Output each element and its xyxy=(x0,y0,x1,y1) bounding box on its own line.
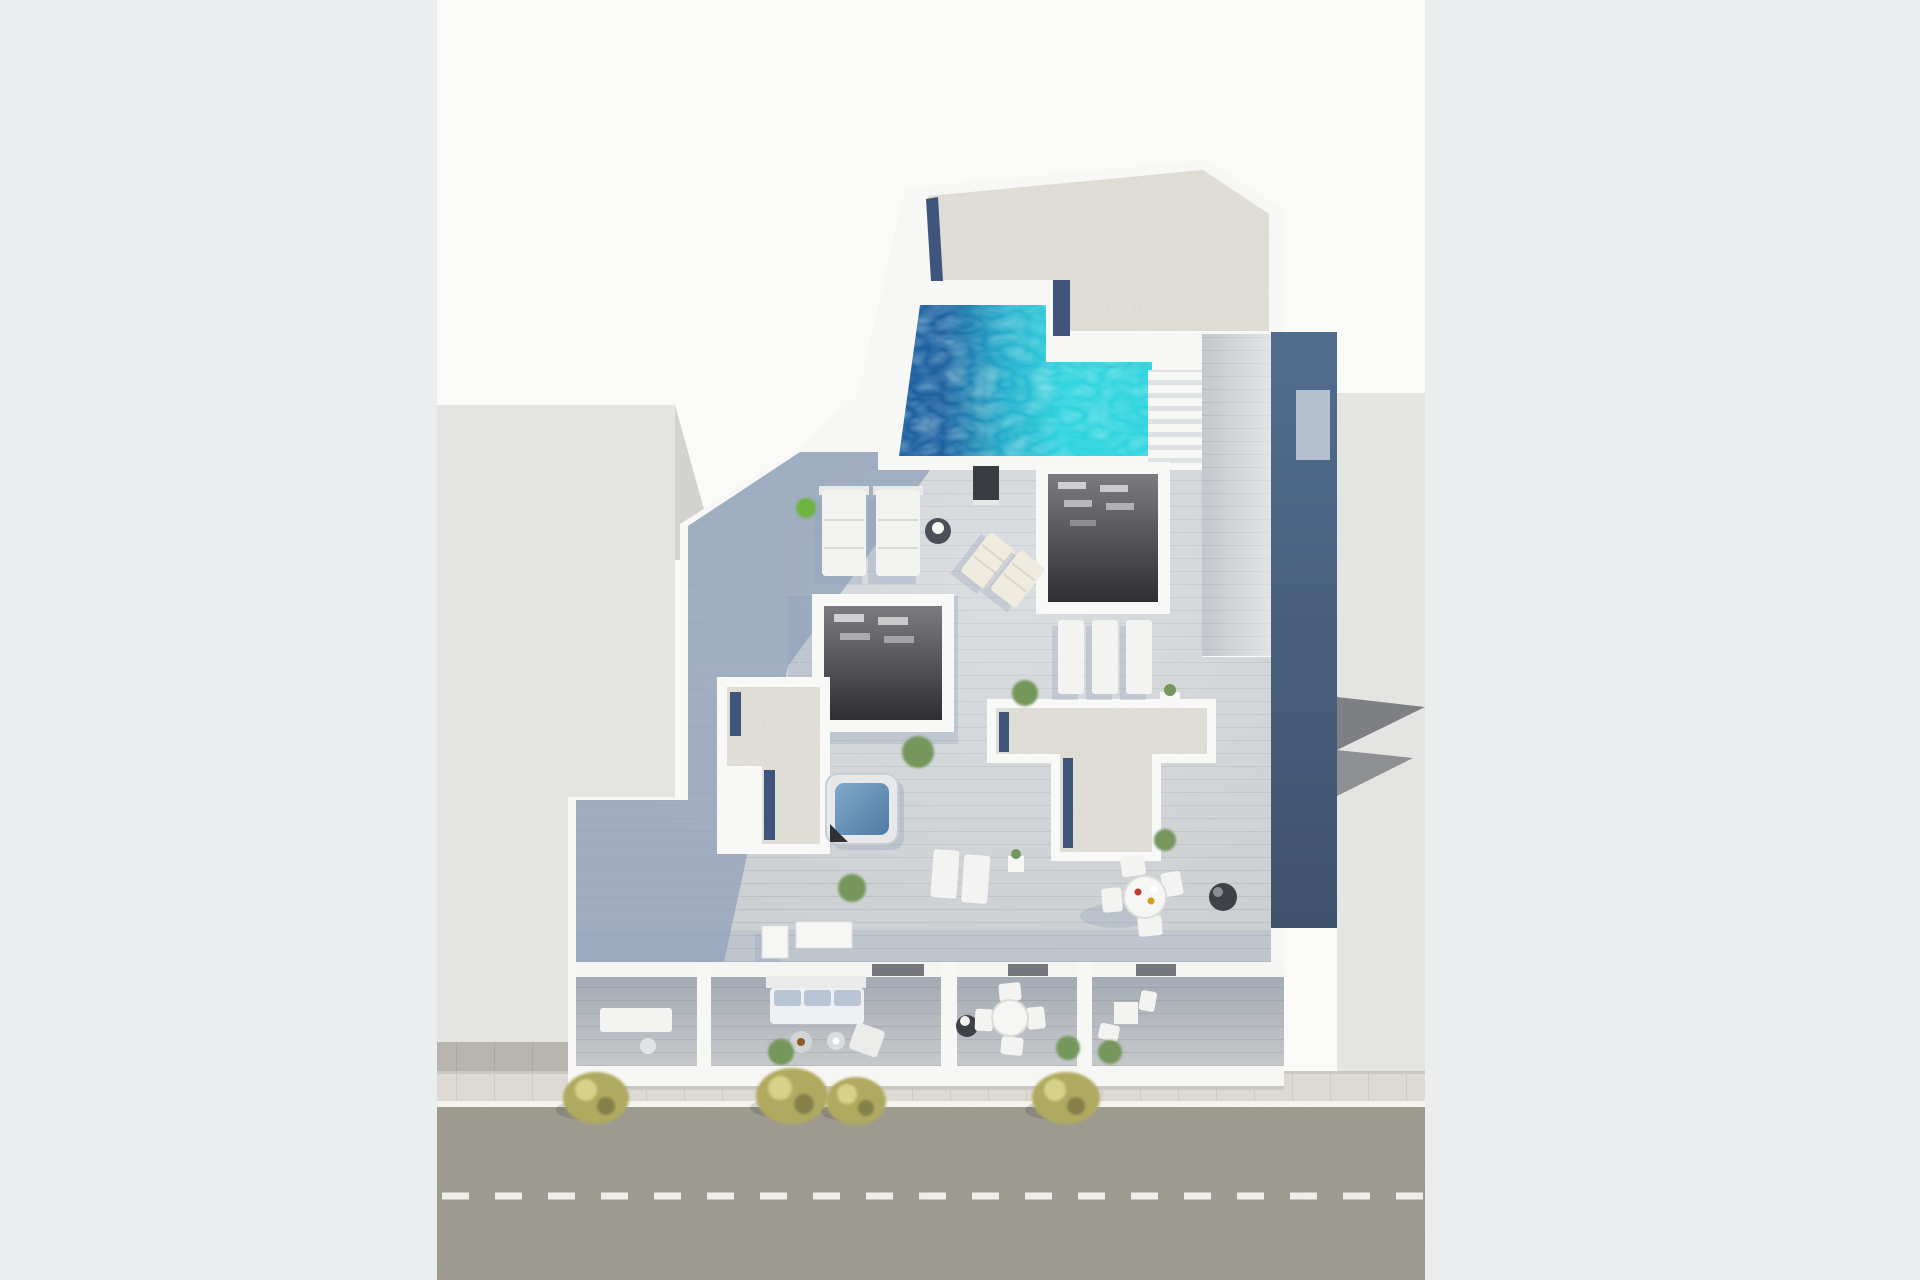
bistro-table xyxy=(1114,1002,1138,1024)
sunbed xyxy=(1126,620,1152,694)
balcony-parapet xyxy=(568,1066,1284,1086)
balcony-divider-wall xyxy=(941,962,957,1070)
sunbed xyxy=(1092,620,1118,694)
tree-shade xyxy=(1067,1097,1085,1115)
balcony-bush xyxy=(1098,1040,1122,1064)
ceiling-light-bar xyxy=(834,614,864,622)
jacuzzi-water xyxy=(835,783,889,835)
pebble-strip-b xyxy=(1053,280,1070,336)
deck-bush xyxy=(1012,680,1038,706)
coffee-table xyxy=(640,1038,656,1054)
lounger xyxy=(930,849,959,899)
stairwell-void-center xyxy=(812,594,954,732)
wall-glass-panel xyxy=(1296,390,1330,460)
tree-canopy xyxy=(1032,1072,1100,1124)
deck-bush xyxy=(1154,829,1176,851)
tree-canopy xyxy=(563,1072,629,1124)
grill-highlight xyxy=(1213,887,1223,897)
sofa-cushion xyxy=(834,990,861,1006)
deck-bush xyxy=(838,874,866,902)
pool-shower-mat xyxy=(973,466,999,504)
sofa-cushion xyxy=(774,990,801,1006)
table-decor xyxy=(833,1038,840,1045)
ceiling-light-bar xyxy=(1106,503,1134,510)
tree-highlight xyxy=(1044,1079,1066,1101)
balcony-divider-wall xyxy=(697,962,711,1070)
pouf-ornament xyxy=(932,522,944,534)
dining-chair xyxy=(1120,854,1147,877)
stair-step xyxy=(1148,424,1206,432)
gravel-terrace-left xyxy=(717,677,830,854)
pool-shower-base xyxy=(973,500,999,505)
ceiling-light-bar xyxy=(878,617,908,625)
door-opening xyxy=(872,964,924,976)
dining-table xyxy=(1124,876,1166,918)
stair-step xyxy=(1148,437,1206,445)
table-bowl xyxy=(797,1038,805,1046)
ceiling-light-bar xyxy=(840,633,870,640)
tree-shade xyxy=(794,1094,814,1114)
grill-pot xyxy=(1209,883,1237,911)
ceiling-light-bar xyxy=(1100,485,1128,492)
walkway-light xyxy=(1202,334,1271,656)
parapet-shadow-line xyxy=(568,1086,1284,1090)
tree-canopy xyxy=(826,1077,886,1125)
door-opening xyxy=(1008,964,1048,976)
door-opening xyxy=(1136,964,1176,976)
balcony-bush xyxy=(768,1039,794,1065)
stairwell-void-right xyxy=(1036,462,1170,614)
credenza xyxy=(766,976,866,988)
tree-shade xyxy=(597,1097,615,1115)
balcony-planks xyxy=(576,962,1284,1068)
table-plate-yellow xyxy=(1148,898,1155,905)
table-plant xyxy=(1011,849,1021,859)
ceiling-light-bar xyxy=(884,636,914,643)
tree-highlight xyxy=(768,1076,792,1100)
neighbor-building-right xyxy=(1337,393,1425,1085)
dining-chair xyxy=(1000,1036,1024,1056)
table-plate-white xyxy=(1150,885,1158,893)
stair-step xyxy=(1148,411,1206,419)
planter-flowers xyxy=(960,1016,970,1026)
balcony-row xyxy=(568,962,1284,1090)
sofa-cushion xyxy=(804,990,831,1006)
ceiling-light-bar xyxy=(1064,500,1092,507)
pebble-strip-d xyxy=(764,770,775,840)
pebble-strip-c xyxy=(730,692,741,736)
ceiling-light-bar xyxy=(1070,520,1096,526)
balcony-bush xyxy=(1056,1036,1080,1060)
table-plant xyxy=(1164,684,1176,696)
dining-chair xyxy=(975,1009,994,1032)
side-walkway xyxy=(1202,334,1271,656)
jacuzzi xyxy=(826,774,904,850)
outdoor-counter xyxy=(796,922,852,948)
stair-step xyxy=(1148,398,1206,406)
stair-step xyxy=(1148,385,1206,393)
table-plate-red xyxy=(1135,889,1142,896)
daybed xyxy=(822,490,866,576)
tree-canopy xyxy=(756,1068,828,1124)
balcony-sofa-small xyxy=(600,1008,672,1032)
tree-highlight xyxy=(837,1084,857,1104)
tree-shade xyxy=(858,1100,874,1116)
street xyxy=(437,1107,1425,1280)
daybeds xyxy=(814,486,923,584)
bistro-chair xyxy=(1138,990,1157,1012)
deck-bush xyxy=(902,736,934,768)
dining-chair xyxy=(1101,887,1123,913)
balcony-divider-wall xyxy=(1077,962,1092,1070)
sunbed xyxy=(1058,620,1084,694)
pebble-strip-f xyxy=(1063,758,1073,848)
daybed xyxy=(876,490,920,576)
stair-step xyxy=(1148,372,1206,380)
stair-step xyxy=(1148,450,1206,458)
void-a-interior xyxy=(1048,474,1158,602)
scene-svg xyxy=(0,0,1920,1280)
render-stage xyxy=(0,0,1920,1280)
dining-table xyxy=(992,1000,1028,1036)
lounger xyxy=(961,854,990,904)
balcony-back-wall xyxy=(576,962,1284,977)
outdoor-cabinet xyxy=(762,926,788,958)
potted-plant xyxy=(796,498,816,518)
ceiling-light-bar xyxy=(1058,482,1086,489)
pebble-strip-e xyxy=(999,712,1009,752)
deck-shadow-bottom-strip xyxy=(576,930,1271,962)
east-shadow-wall xyxy=(1271,332,1337,928)
tree-highlight xyxy=(575,1079,597,1101)
